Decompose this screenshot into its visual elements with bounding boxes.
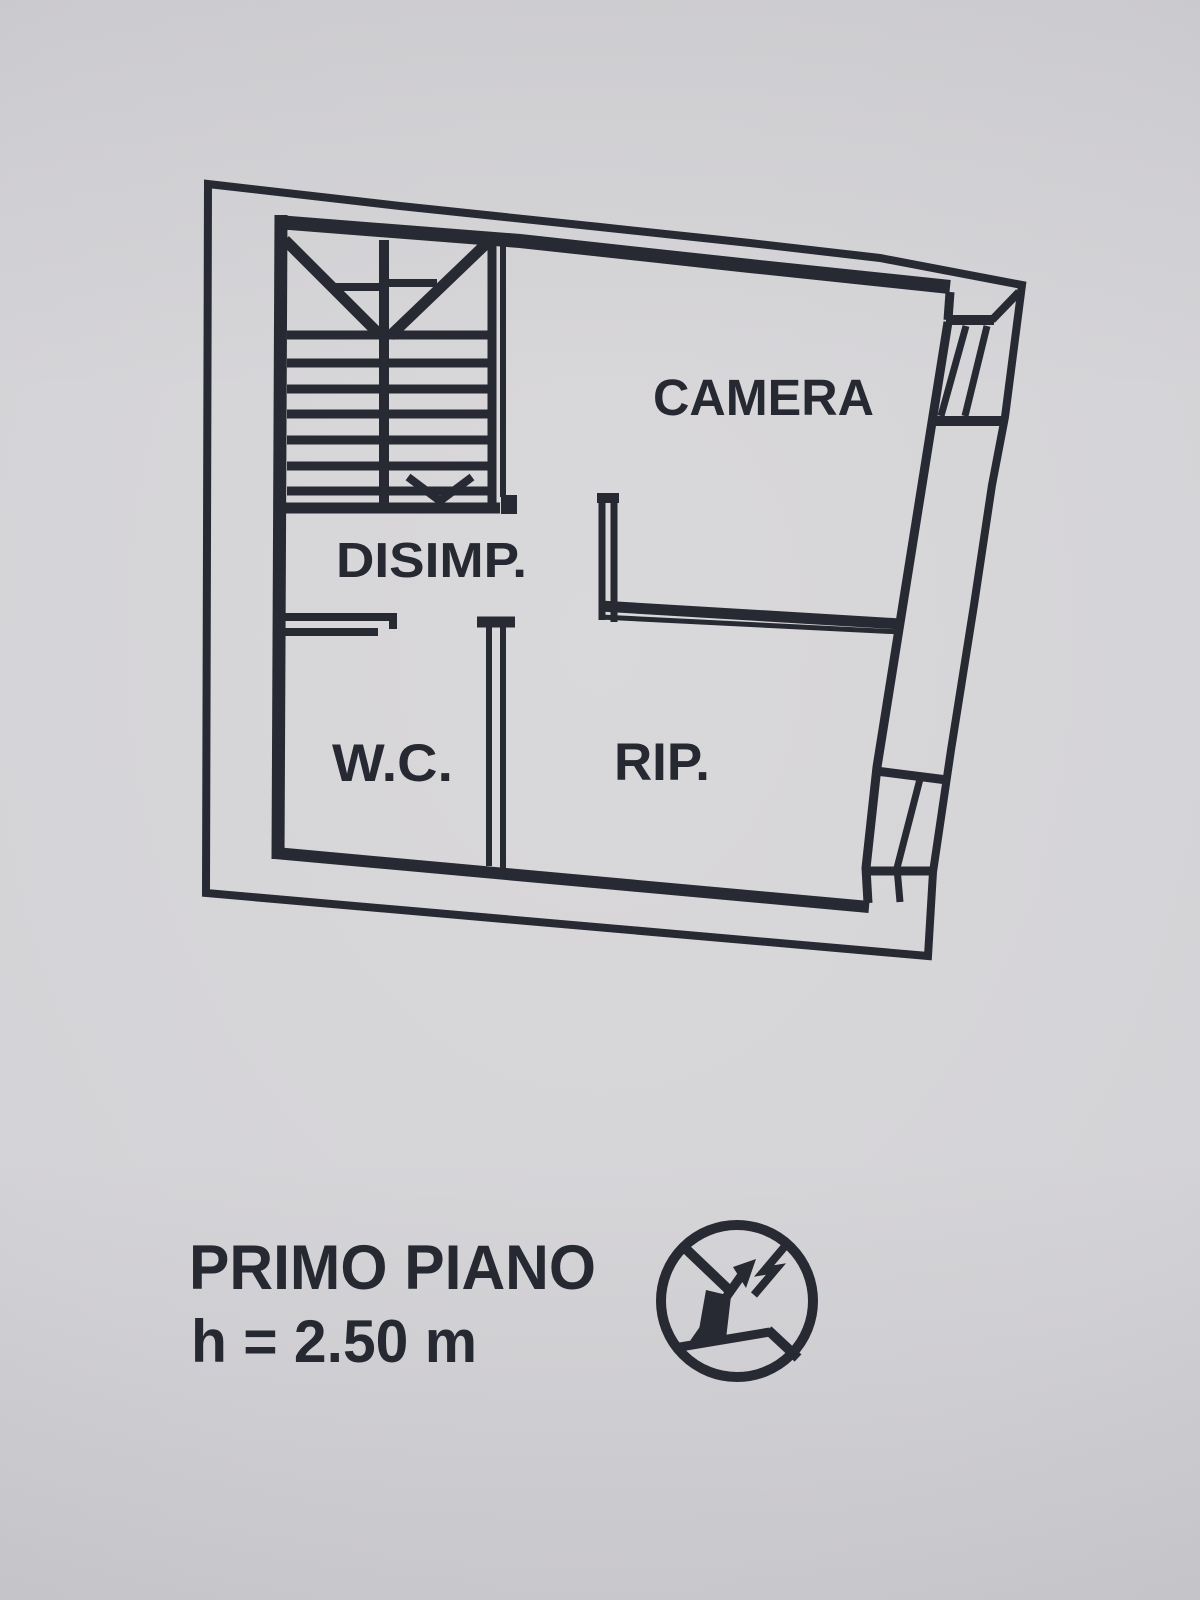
svg-text:PRIMO PIANO: PRIMO PIANO <box>189 1233 596 1303</box>
svg-text:RIP.: RIP. <box>614 733 710 792</box>
svg-text:CAMERA: CAMERA <box>653 369 874 426</box>
svg-text:DISIMP.: DISIMP. <box>336 534 527 588</box>
svg-text:W.C.: W.C. <box>332 734 453 793</box>
svg-text:h = 2.50 m: h = 2.50 m <box>191 1308 477 1375</box>
